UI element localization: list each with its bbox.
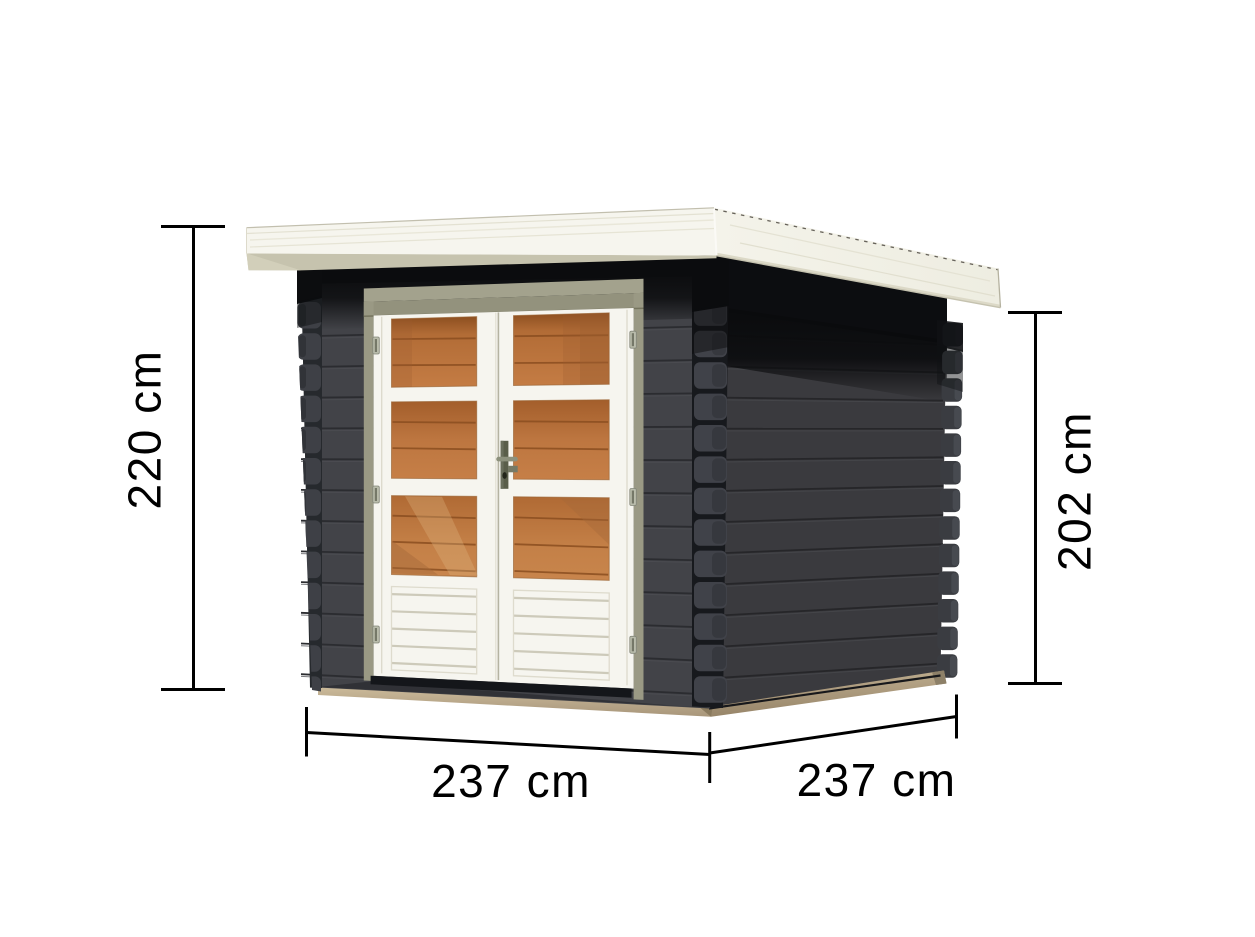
svg-text:202 cm: 202 cm: [1049, 411, 1101, 571]
svg-text:237 cm: 237 cm: [797, 754, 957, 806]
svg-text:237 cm: 237 cm: [431, 755, 591, 807]
svg-text:220 cm: 220 cm: [119, 350, 171, 510]
